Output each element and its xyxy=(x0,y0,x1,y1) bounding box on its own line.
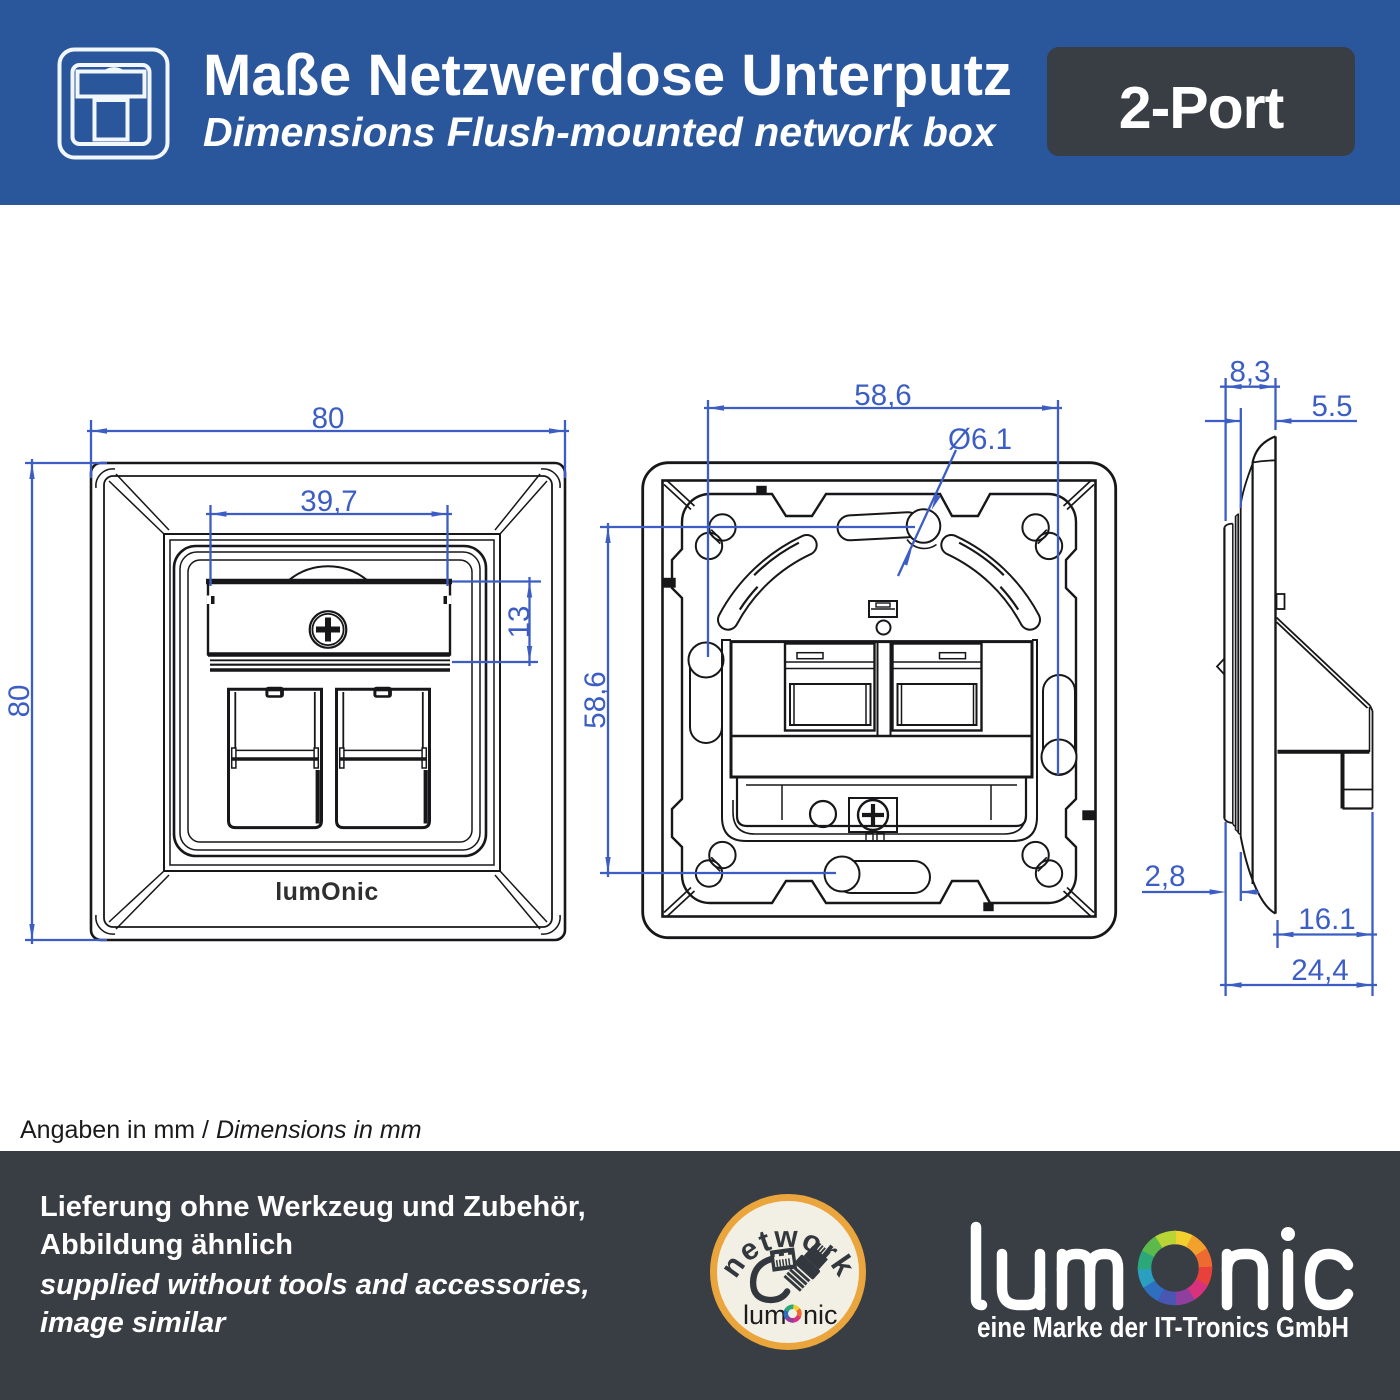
svg-text:80: 80 xyxy=(3,685,36,718)
svg-text:16.1: 16.1 xyxy=(1298,903,1355,936)
svg-text:lum: lum xyxy=(743,1300,787,1330)
svg-text:58,6: 58,6 xyxy=(854,379,911,412)
svg-text:2,8: 2,8 xyxy=(1144,860,1185,893)
svg-text:5.5: 5.5 xyxy=(1311,390,1352,423)
svg-text:13: 13 xyxy=(503,606,536,639)
svg-text:eine Marke der IT-Tronics GmbH: eine Marke der IT-Tronics GmbH xyxy=(977,1312,1349,1344)
svg-text:24,4: 24,4 xyxy=(1291,954,1348,987)
svg-text:58,6: 58,6 xyxy=(579,671,612,728)
svg-text:lumOnic: lumOnic xyxy=(275,878,379,906)
svg-text:Ø6.1: Ø6.1 xyxy=(948,423,1012,456)
svg-text:nic: nic xyxy=(803,1300,838,1330)
svg-text:80: 80 xyxy=(312,402,345,435)
svg-text:8,3: 8,3 xyxy=(1229,356,1270,389)
svg-text:39,7: 39,7 xyxy=(300,485,357,518)
